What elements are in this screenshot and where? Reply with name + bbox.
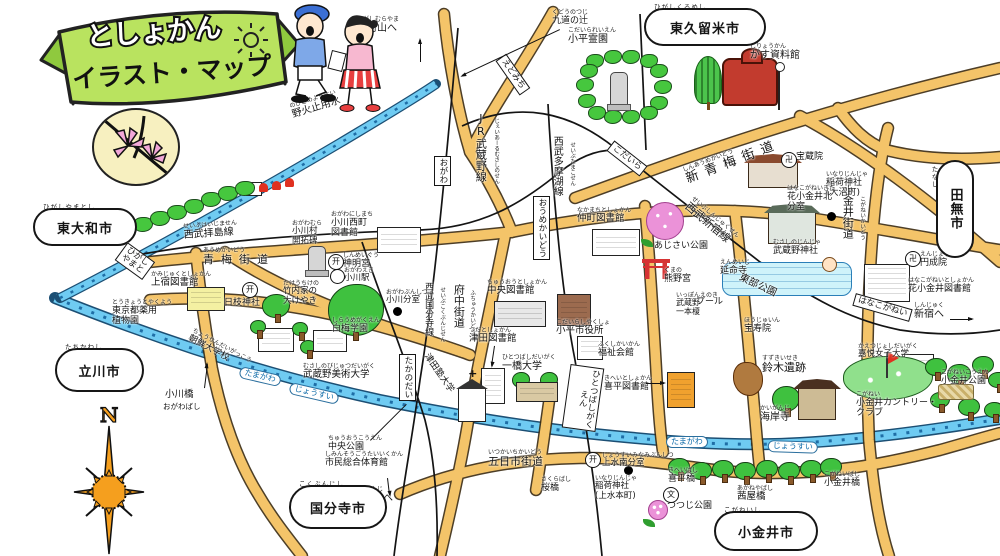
place-nakamachi-library: なかまちとしょかん仲町図書館 [577,208,631,225]
road-fuchukaido: 府中街道 [452,284,464,328]
place-inari-josuihoncho: いなりじんじゃ稲荷神社 (上水本町) [595,476,637,501]
place-tsuda-library: つだとしょかん津田図書館 [469,328,517,345]
kamijuku-bldg [187,287,225,311]
koganei-park-tree-7 [984,402,1000,418]
place-suzuki-iseki: すずきいせき鈴木遺跡 [762,356,806,374]
sign-omekaido: おうめかいどう [533,196,550,260]
bridge-koganei: こがねいばし小金井橋 [824,472,860,488]
ogawanishimachi-bldg [377,227,421,253]
place-hitotsubashi-univ: ひとつばしだいがく一橋大学 [502,355,556,372]
dir-shinjuku: しんじゅく新宿へ [914,303,944,320]
hanakoganei-library-bldg [864,264,910,302]
tsudajuku-church [458,388,486,422]
cemetery-monument [610,72,628,108]
sign-takanodai-sta: たかのだい [399,354,416,401]
gate-shinmeigu: 开 [328,254,344,270]
title-banner: としょかん イラスト・マップ [35,2,315,142]
place-koganei-park: こがねいこうえん小金井公園 [941,370,989,386]
city-tachikawa: たちかわし立川市 [55,348,144,392]
bridge-ogawa-kana: おがわばし [163,403,201,411]
koganei-park-tree-4 [988,372,1000,388]
koganei-park-path [938,384,974,400]
suzuki-rock [733,362,763,396]
spot-kudonotsuji: くどうのつじ九道の辻 [552,10,588,26]
place-yakuyo-garden: とうきょうとやくよう東京都薬用 植物園 [112,300,172,326]
place-kaitakuhi: おがわむら小川村 開拓碑 [292,221,322,246]
city-kokubunji: こくぶんじし国分寺市 [289,485,387,529]
hitotsubashi-bldg [516,382,558,402]
place-chuo-park: ちゅうおうこうえん中央公園 [328,436,382,452]
place-fukushikaikan: ふくしかいかん福祉会館 [598,342,640,358]
city-koganei: こがねいし小金井市 [714,511,818,551]
place-ajisai-park: あじさい公園 [654,241,708,251]
place-pool: プール [696,297,723,307]
kaiganji-temple [798,388,836,420]
nakamachi-bldg [592,229,640,256]
place-hojuin: ほうじゅいん宝寿院 [744,318,780,334]
place-shinmeigu: しんめいぐう神明宮 [343,253,379,269]
tsutsuji-flower [648,500,668,520]
city-tanashi: たなし田無市 [936,160,974,258]
city-higashikurume: ひがしくるめし東久留米市 [644,8,766,46]
compass-rose: N [66,396,152,556]
place-takeuchi-keyaki: たけうちけの竹内家の 大けやき [283,281,319,306]
arrow-shinjuku [950,319,972,320]
manji-enjoin: 卍 [905,251,921,267]
sign-ogawa: おがわ [434,156,451,186]
arrow-higashimurayama [420,40,421,62]
arrow-kihei-library [646,383,664,384]
willow-tree [694,56,722,104]
kihei-library-bldg [667,372,695,408]
place-gym: しみんそうごうたいいくかん市民総合体育館 [325,452,403,468]
rail-jr-musashino-furi: じぇいあーるむさしのせん [493,118,499,184]
place-kodaira-cemetery: こだいられいえん小平霊園 [568,28,616,45]
place-hozoin: 宝蔵院 [796,152,823,162]
place-gas-museum: しりょうかんがす資料館 [750,44,800,61]
road-itsukaichikaido: いつかいちかいどう五日市街道 [488,450,543,468]
kaitakuhi-monument [308,246,326,274]
place-musashino-shrine: むさしのじんじゃ武蔵野神社 [773,240,821,256]
chuo-library-bldg [494,301,546,327]
street-lamp [778,66,790,110]
illustrated-map: としょかん イラスト・マップ [0,0,1000,556]
road-omekaido: あうめかいどう青梅街道 [203,248,275,266]
place-kodaira-cityhall: こだいらしやくしょ小平市役所 [556,320,610,337]
manji-hozoin: 卍 [781,152,797,168]
rail-tamako-furi: せいぶたまこせん [569,142,575,186]
hydrangea [646,202,684,240]
rail-tamako: 西武多摩湖線 [551,136,562,196]
pill-tamagawa-2: たまがわ [666,436,708,448]
children-illustration [282,0,394,118]
place-hanakoganeikita-bunshitsu: はなこがねいきた花小金井北 分室 [787,186,835,212]
gate-hie: 开 [242,282,258,298]
dot-ogawa-bunshitsu [393,307,402,316]
place-hie-shrine: 日枝神社 [224,298,260,308]
compass-north-label: N [100,403,118,427]
rail-kokubunji-line-furi: せいぶこくぶんじせん [439,287,445,342]
bridge-ogawa: 小川橋 [165,390,194,401]
pill-josui-2: じょうすい [768,440,818,453]
place-ogawanishimachi-library: おがわにしまち小川西町 図書館 [331,212,373,238]
place-musabi: むさしのびじゅつだいがく武蔵野美術大学 [303,364,375,381]
school-mark: 文 [663,487,679,503]
dot-hanakoganeikita [827,212,836,221]
gate-inari-josui: 开 [585,452,601,468]
place-kaiganji: かいがんじ海岸寺 [760,406,790,423]
place-hanakoganei-library: はなこがねいとしょかん花小金井図書館 [908,278,974,294]
place-kaetsu: かえつじょしだいがく嘉悦女子大学 [858,344,918,360]
place-kumanogu: くまの熊野宮 [664,268,691,284]
bridge-akaneya: あかねやばし茜屋橋 [737,486,773,503]
place-ogawa-sta: おがわえき小川駅 [344,268,374,284]
ogawa-sta-mark [330,269,345,284]
rail-jr-musashino: JR武蔵野線 [474,112,486,182]
place-kihei-library: きへいとしょかん喜平図書館 [604,376,652,392]
place-ogawa-bunshitsu: おがわぶんしつ小川分室 [386,290,428,306]
place-kamijuku-library: かみじゅくとしょかん上宿図書館 [151,272,211,289]
gas-museum-building [722,58,778,106]
place-koganei-country-club: こがねい小金井カントリー・ クラブ [856,392,937,418]
place-josuiminami-bunshitsu: じょうすいみなみぶんしつ上水南分室 [602,453,674,469]
bridge-sakura: さくらばし桜橋 [541,477,571,493]
road-koganeikaido-furi: こがねいかいどう [859,196,865,240]
place-chuo-library: ちゅうおうとしょかん中央図書館 [487,280,547,297]
city-higashiyamato: ひがしやまとし東大和市 [33,208,137,246]
place-shiraume: しらうめがくえん白梅学園 [332,318,380,334]
bridge-kihei: きへいばし喜平橋 [668,468,698,484]
